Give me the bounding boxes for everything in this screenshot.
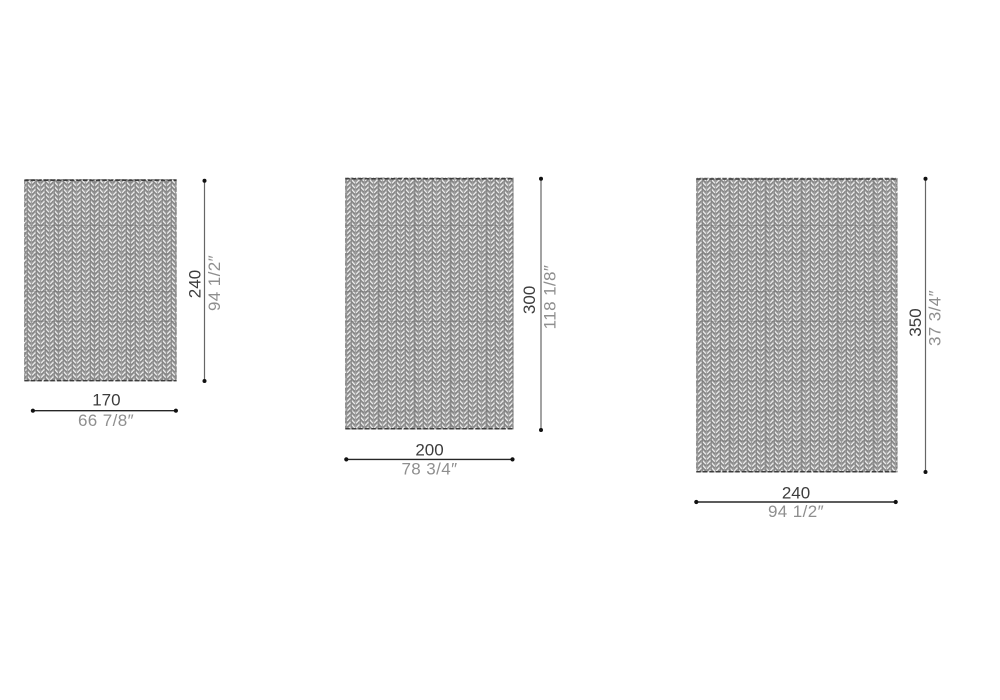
- svg-text:37 3/4″: 37 3/4″: [926, 290, 945, 346]
- svg-text:170: 170: [92, 390, 120, 409]
- svg-text:350: 350: [906, 308, 925, 336]
- svg-text:200: 200: [415, 441, 443, 460]
- svg-text:240: 240: [186, 270, 205, 298]
- svg-text:94 1/2″: 94 1/2″: [768, 502, 824, 521]
- svg-text:94 1/2″: 94 1/2″: [205, 255, 224, 311]
- svg-text:300: 300: [520, 286, 539, 314]
- svg-text:78 3/4″: 78 3/4″: [401, 460, 457, 479]
- svg-text:240: 240: [782, 483, 810, 502]
- svg-text:66 7/8″: 66 7/8″: [78, 411, 134, 430]
- svg-text:118 1/8″: 118 1/8″: [541, 265, 560, 330]
